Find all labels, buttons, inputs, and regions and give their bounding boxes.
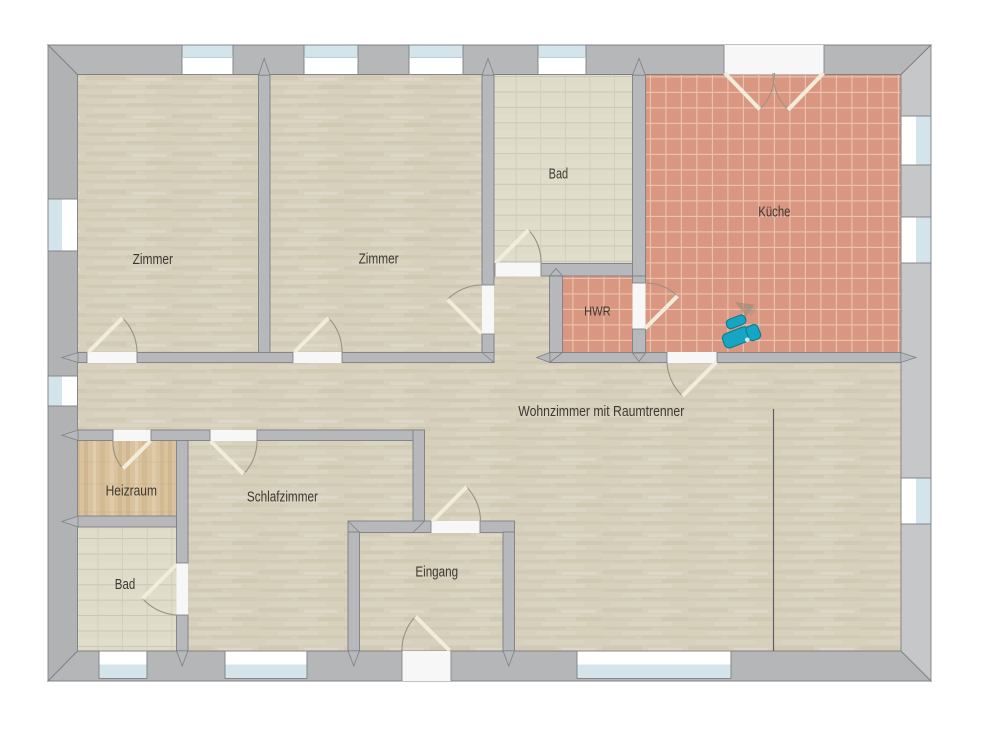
svg-text:Schlafzimmer: Schlafzimmer <box>247 489 318 506</box>
svg-text:HWR: HWR <box>584 305 611 319</box>
svg-text:Bad: Bad <box>115 576 135 593</box>
svg-text:Eingang: Eingang <box>415 563 458 580</box>
svg-text:Bad: Bad <box>549 166 569 183</box>
svg-text:Zimmer: Zimmer <box>359 250 399 267</box>
svg-text:Heizraum: Heizraum <box>106 483 157 500</box>
svg-text:Küche: Küche <box>758 203 790 220</box>
svg-text:Zimmer: Zimmer <box>133 251 173 268</box>
svg-text:Wohnzimmer mit Raumtrenner: Wohnzimmer mit Raumtrenner <box>518 403 684 420</box>
